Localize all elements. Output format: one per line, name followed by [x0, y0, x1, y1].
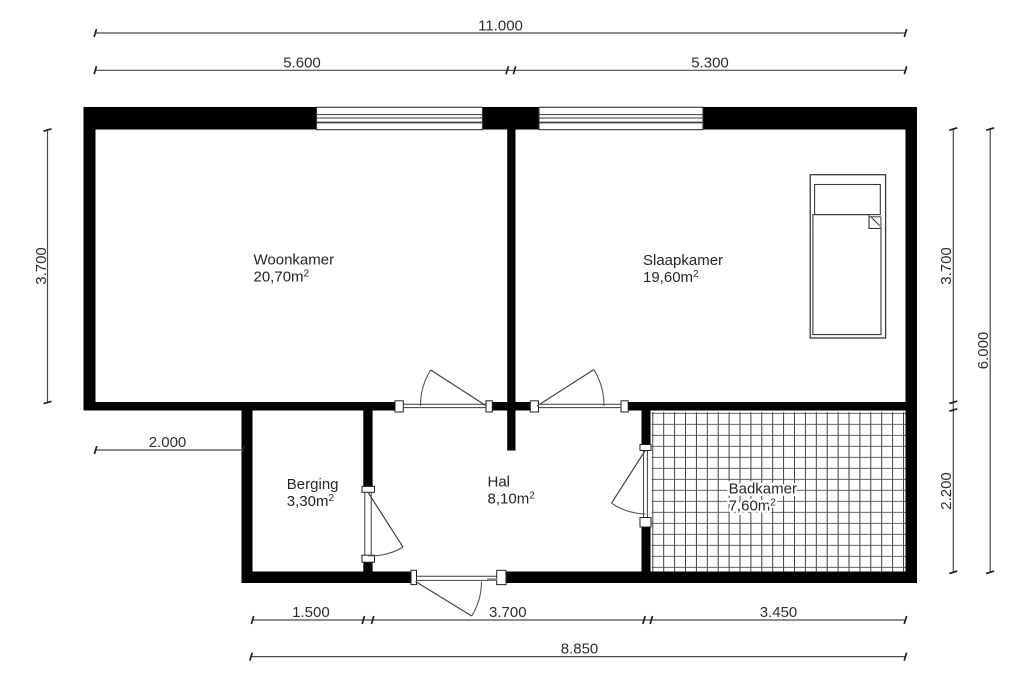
svg-text:3.700: 3.700: [33, 247, 50, 285]
svg-text:2.000: 2.000: [149, 434, 187, 451]
svg-text:Hal: Hal: [488, 474, 511, 491]
svg-text:Woonkamer: Woonkamer: [254, 252, 335, 269]
svg-text:11.000: 11.000: [478, 17, 523, 34]
svg-text:3.450: 3.450: [760, 604, 798, 621]
svg-text:3,30m2: 3,30m2: [287, 493, 335, 510]
svg-text:6.000: 6.000: [975, 332, 992, 370]
svg-text:19,60m2: 19,60m2: [643, 269, 699, 286]
svg-text:3.700: 3.700: [938, 247, 955, 285]
svg-text:Slaapkamer: Slaapkamer: [643, 252, 723, 269]
svg-text:1.500: 1.500: [292, 604, 330, 621]
svg-text:3.700: 3.700: [489, 604, 527, 621]
svg-text:8.850: 8.850: [561, 641, 599, 658]
svg-text:2.200: 2.200: [938, 472, 955, 510]
svg-text:20,70m2: 20,70m2: [254, 269, 310, 286]
svg-text:8,10m2: 8,10m2: [488, 491, 536, 508]
svg-text:5.300: 5.300: [691, 54, 729, 71]
svg-text:Berging: Berging: [287, 476, 339, 493]
svg-text:Badkamer: Badkamer: [729, 481, 797, 498]
svg-text:5.600: 5.600: [283, 54, 321, 71]
svg-text:7,60m2: 7,60m2: [729, 498, 777, 515]
